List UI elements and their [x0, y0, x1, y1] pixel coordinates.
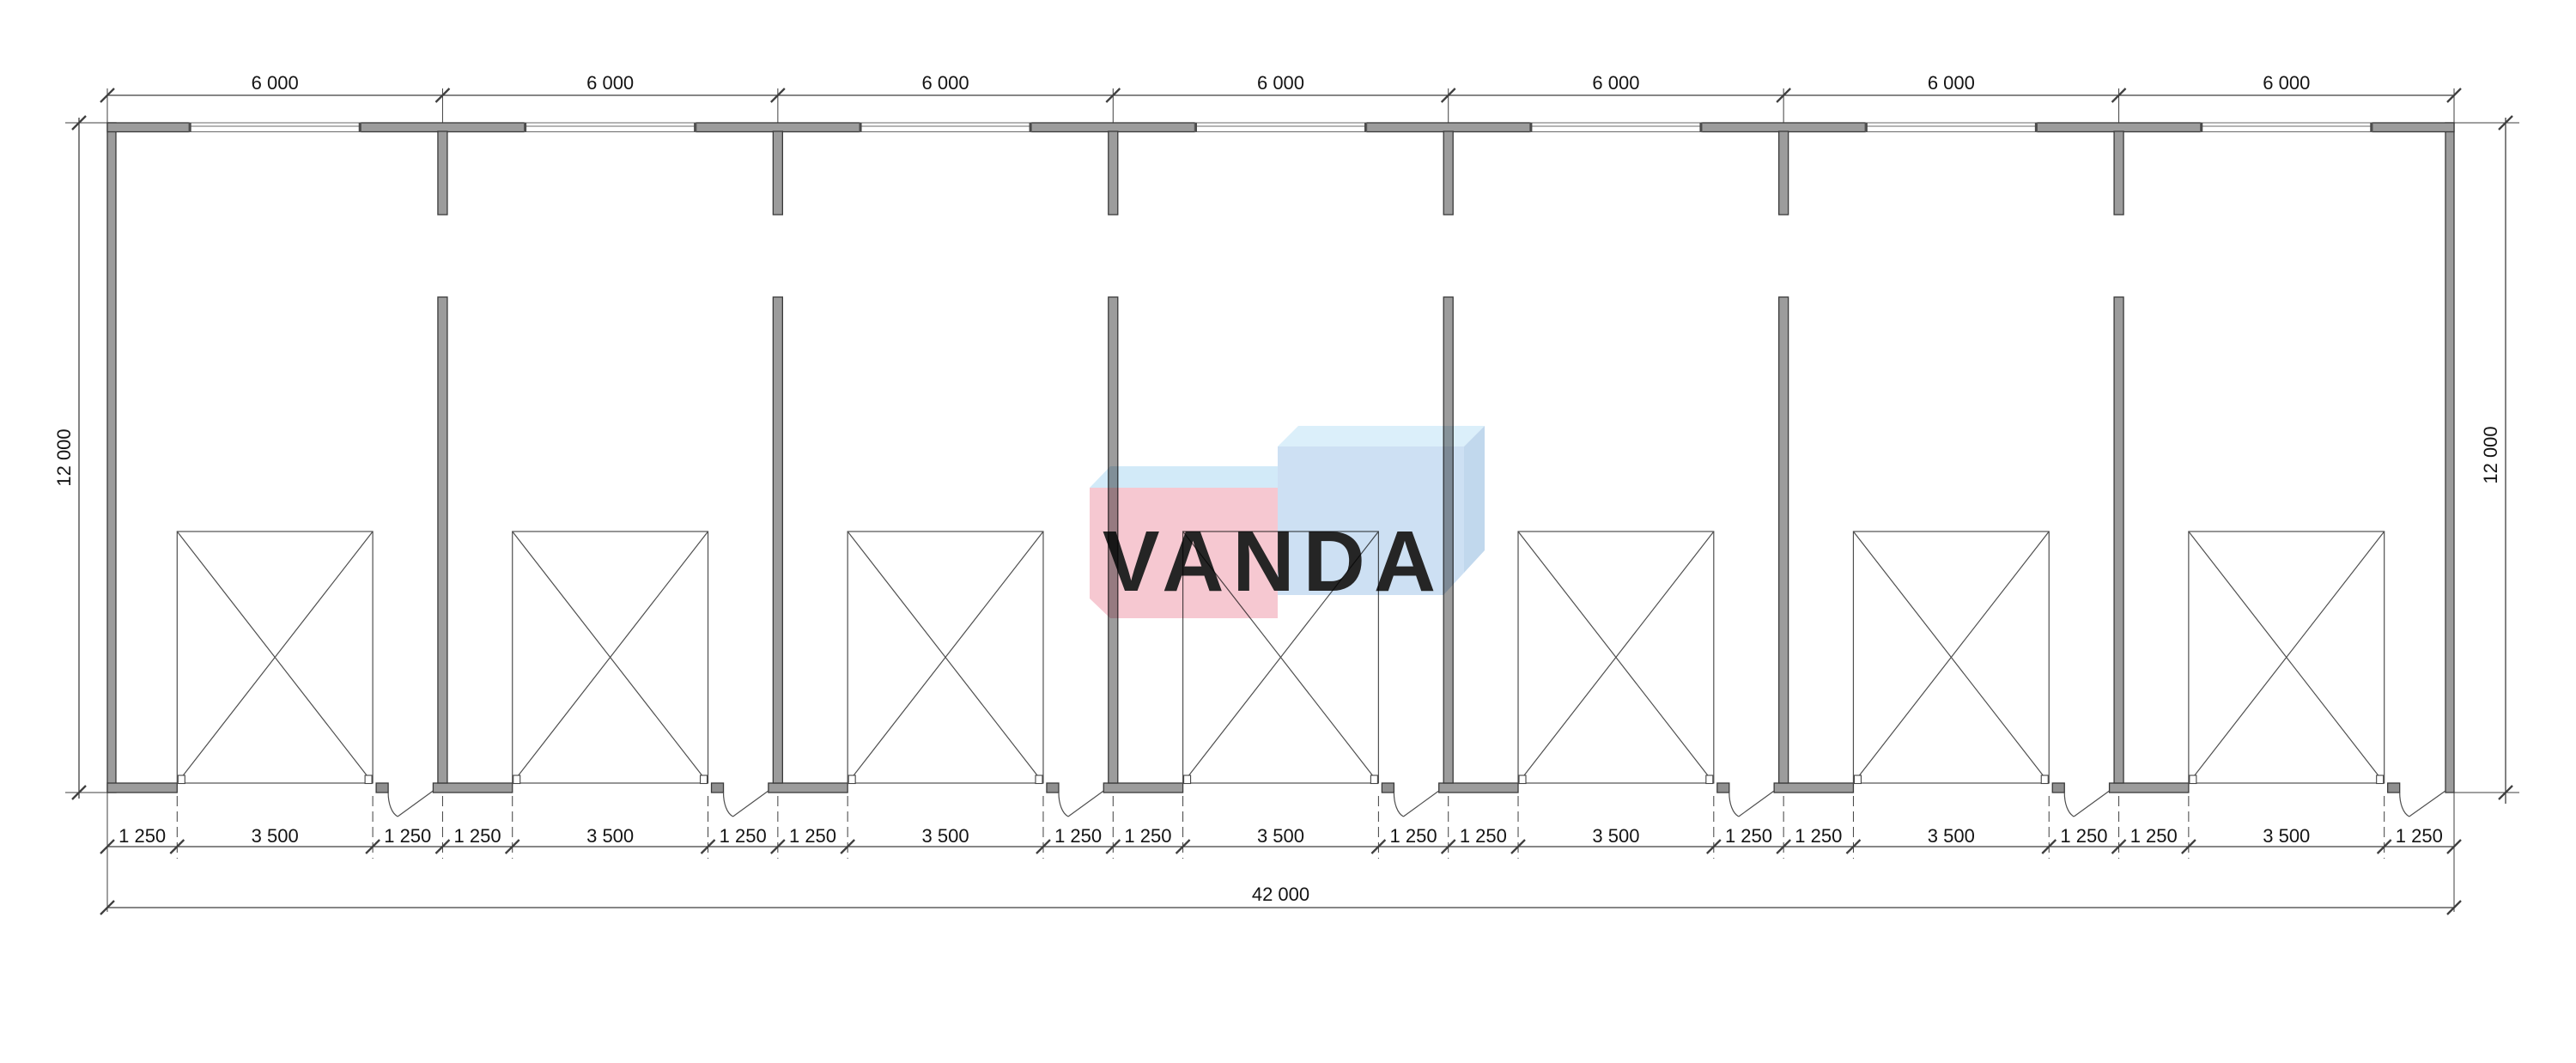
door-leaf — [1068, 791, 1103, 817]
bottom-wall-segment — [2110, 783, 2189, 793]
dim-label-segment: 1 250 — [2060, 825, 2107, 847]
partition-wall — [1779, 297, 1789, 783]
dim-label-bay-width: 6 000 — [1592, 72, 1639, 94]
dim-label-segment: 1 250 — [2130, 825, 2178, 847]
dim-label-segment: 1 250 — [384, 825, 431, 847]
door-leaf — [1739, 791, 1774, 817]
dim-label-bay-width: 6 000 — [1928, 72, 1975, 94]
dim-label-segment: 3 500 — [1928, 825, 1975, 847]
top-wall-segment — [696, 123, 860, 132]
exterior-wall-right — [2445, 123, 2454, 793]
dim-label-bay-width: 6 000 — [586, 72, 634, 94]
bottom-wall-segment — [1774, 783, 1853, 793]
partition-wall-stub — [2114, 131, 2123, 215]
door-jamb-block — [1047, 783, 1059, 793]
door-swing-arc — [1729, 793, 1739, 817]
dim-label-segment: 1 250 — [789, 825, 836, 847]
dim-label-segment: 1 250 — [1124, 825, 1171, 847]
logo-box-right-side — [1464, 426, 1485, 573]
door-jamb — [2190, 775, 2196, 784]
top-wall-segment — [1031, 123, 1194, 132]
dim-label-segment: 3 500 — [1257, 825, 1304, 847]
door-leaf — [2074, 791, 2109, 817]
dim-label-segment: 1 250 — [1390, 825, 1437, 847]
dim-label-segment: 1 250 — [1795, 825, 1842, 847]
dim-label-segment: 3 500 — [252, 825, 299, 847]
dim-label-segment: 1 250 — [1725, 825, 1772, 847]
dim-label-segment: 3 500 — [586, 825, 634, 847]
dim-label-height-left: 12 000 — [53, 428, 75, 486]
bottom-wall-segment — [433, 783, 512, 793]
window-frame-mark — [1699, 123, 1702, 132]
floor-plan-canvas: 6 0006 0006 0006 0006 0006 0006 00012 00… — [0, 0, 2576, 1063]
door-swing-arc — [388, 793, 398, 817]
door-leaf — [733, 791, 769, 817]
dim-label-segment: 1 250 — [454, 825, 501, 847]
dim-label-segment: 1 250 — [1460, 825, 1507, 847]
window — [1194, 123, 1366, 132]
top-wall-segment — [1702, 123, 1865, 132]
dim-label-segment: 1 250 — [1054, 825, 1102, 847]
partition-wall-stub — [1779, 131, 1789, 215]
window-frame-mark — [2370, 123, 2372, 132]
partition-wall — [438, 297, 447, 783]
watermark-logo: VANDA — [1090, 426, 1485, 618]
partition-wall — [773, 297, 782, 783]
door-jamb-block — [376, 783, 388, 793]
window-frame-mark — [2201, 123, 2203, 132]
door-leaf — [2409, 791, 2445, 817]
window-frame-mark — [359, 123, 361, 132]
window-frame-mark — [860, 123, 862, 132]
door-jamb-block — [1717, 783, 1729, 793]
dim-label-segment: 3 500 — [922, 825, 969, 847]
door-jamb — [701, 775, 708, 784]
window — [2201, 123, 2372, 132]
dim-label-segment: 1 250 — [118, 825, 166, 847]
bottom-wall-segment — [107, 783, 177, 793]
window — [1865, 123, 2037, 132]
top-wall-segment — [107, 123, 189, 132]
dim-label-bay-width: 6 000 — [922, 72, 969, 94]
logo-box-left-top — [1090, 466, 1298, 488]
door-jamb — [1519, 775, 1526, 784]
door-jamb-block — [1382, 783, 1394, 793]
door-jamb-block — [2388, 783, 2400, 793]
window-frame-mark — [1030, 123, 1032, 132]
pedestrian-doors-layer — [388, 791, 2445, 817]
dim-label-segment: 3 500 — [1592, 825, 1639, 847]
partition-wall-stub — [438, 131, 447, 215]
logo-text: VANDA — [1103, 513, 1444, 610]
dim-label-total-width: 42 000 — [1252, 884, 1309, 905]
dim-label-segment: 1 250 — [2396, 825, 2443, 847]
dim-label-bay-width: 6 000 — [2263, 72, 2310, 94]
door-swing-arc — [1394, 793, 1403, 817]
door-swing-arc — [2064, 793, 2074, 817]
logo-box-right-top — [1278, 426, 1485, 446]
top-wall-segment — [2372, 123, 2454, 132]
floor-plan-drawing: 6 0006 0006 0006 0006 0006 0006 00012 00… — [0, 0, 2576, 1063]
window-frame-mark — [1530, 123, 1533, 132]
window-frame-mark — [2035, 123, 2038, 132]
door-jamb — [1854, 775, 1861, 784]
partition-wall-stub — [1443, 131, 1453, 215]
door-leaf — [1403, 791, 1438, 817]
door-jamb — [513, 775, 520, 784]
door-jamb — [1036, 775, 1042, 784]
exterior-wall-left — [107, 123, 116, 793]
door-swing-arc — [724, 793, 733, 817]
window — [1530, 123, 1702, 132]
window-frame-mark — [189, 123, 191, 132]
dim-label-segment: 1 250 — [720, 825, 767, 847]
window-frame-mark — [694, 123, 696, 132]
door-swing-arc — [2400, 793, 2409, 817]
window-frame-mark — [1194, 123, 1197, 132]
bottom-wall-segment — [1439, 783, 1518, 793]
window — [525, 123, 696, 132]
window-frame-mark — [1865, 123, 1868, 132]
top-wall-segment — [1366, 123, 1529, 132]
bottom-wall-segment — [1103, 783, 1182, 793]
door-jamb — [1706, 775, 1713, 784]
bottom-wall-segment — [769, 783, 848, 793]
partition-wall — [2114, 297, 2123, 783]
dim-label-height-right: 12 000 — [2480, 426, 2501, 483]
door-jamb-block — [2052, 783, 2064, 793]
door-swing-arc — [1059, 793, 1068, 817]
partition-wall-stub — [773, 131, 782, 215]
window-frame-mark — [1364, 123, 1367, 132]
window — [860, 123, 1031, 132]
door-jamb — [1370, 775, 1377, 784]
door-jamb — [178, 775, 185, 784]
window-frame-mark — [525, 123, 527, 132]
door-jamb — [1184, 775, 1191, 784]
door-leaf — [398, 791, 433, 817]
top-wall-segment — [361, 123, 524, 132]
door-jamb — [848, 775, 855, 784]
dim-label-segment: 3 500 — [2263, 825, 2310, 847]
door-jamb — [365, 775, 372, 784]
window — [189, 123, 361, 132]
dim-label-bay-width: 6 000 — [252, 72, 299, 94]
partition-wall-stub — [1109, 131, 1118, 215]
dim-label-bay-width: 6 000 — [1257, 72, 1304, 94]
top-wall-segment — [2037, 123, 2200, 132]
door-jamb — [2377, 775, 2384, 784]
door-jamb-block — [712, 783, 724, 793]
door-jamb — [2041, 775, 2048, 784]
